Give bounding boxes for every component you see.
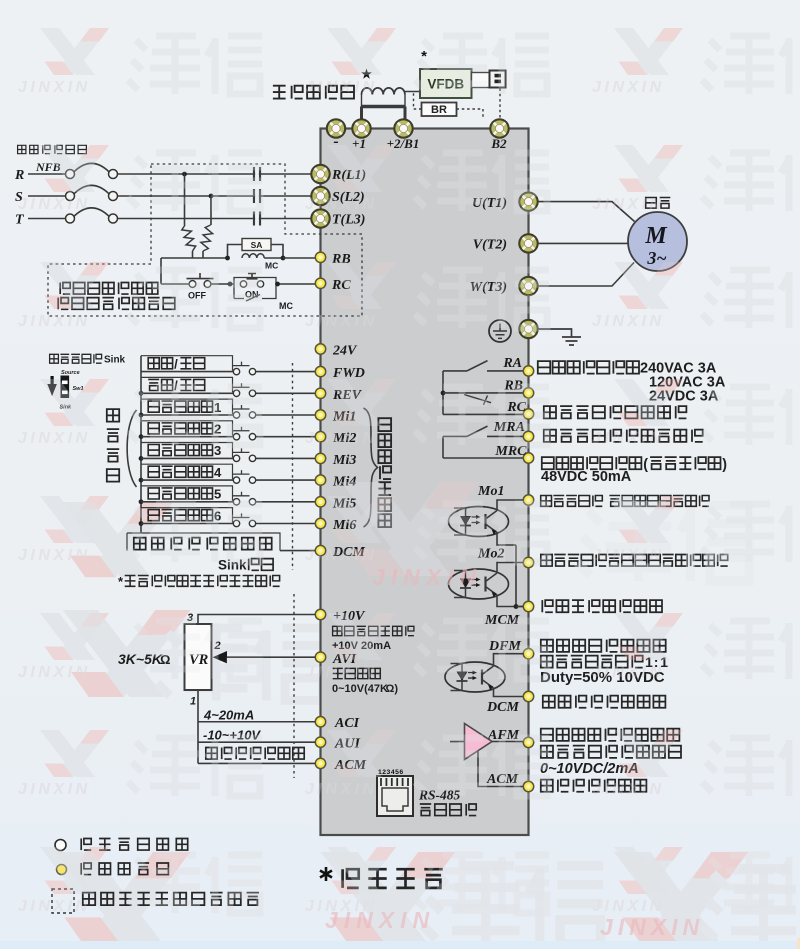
svg-text:VR: VR	[189, 652, 209, 668]
svg-text:Source: Source	[61, 370, 80, 376]
svg-text:1: 1	[214, 400, 221, 415]
svg-text:Mi6: Mi6	[332, 518, 356, 533]
svg-text:AVI: AVI	[332, 652, 357, 667]
svg-text:48VDC 50mA: 48VDC 50mA	[541, 469, 632, 485]
svg-text:★: ★	[361, 67, 372, 81]
svg-text:+10V 20mA: +10V 20mA	[332, 640, 391, 652]
svg-text:0~10V(47K: 0~10V(47K	[332, 683, 388, 695]
svg-text:SA: SA	[251, 240, 263, 250]
svg-text:RC: RC	[506, 400, 526, 415]
svg-text:S(L2): S(L2)	[332, 190, 365, 205]
svg-text:3K~5K: 3K~5K	[118, 651, 163, 667]
svg-text:RC: RC	[331, 278, 351, 293]
svg-text:ACI: ACI	[334, 716, 360, 731]
svg-text:DCM: DCM	[486, 700, 519, 715]
svg-text:2: 2	[214, 640, 221, 652]
svg-text:5: 5	[214, 487, 221, 502]
svg-text:1: 1	[190, 696, 196, 708]
svg-text:/: /	[174, 357, 178, 372]
svg-text:Mo1: Mo1	[477, 484, 504, 499]
svg-text:MC: MC	[265, 261, 278, 271]
svg-text:B2: B2	[490, 136, 507, 151]
svg-text:R(L1): R(L1)	[331, 168, 366, 183]
svg-text:Sw1: Sw1	[73, 386, 84, 392]
svg-text:T(L3): T(L3)	[332, 213, 365, 228]
svg-text:MRA: MRA	[493, 420, 525, 435]
svg-text:24VDC 3A: 24VDC 3A	[649, 389, 719, 405]
svg-text:DFM: DFM	[488, 639, 521, 654]
svg-text:AUI: AUI	[334, 737, 360, 752]
svg-text:R: R	[14, 168, 24, 183]
svg-text:(: (	[643, 457, 648, 473]
svg-text:MCM: MCM	[484, 613, 520, 628]
svg-text:BR: BR	[431, 104, 447, 116]
svg-text:-: -	[333, 133, 338, 150]
svg-text:Mi3: Mi3	[332, 453, 356, 468]
svg-text:/: /	[174, 378, 178, 393]
svg-text:MC: MC	[279, 301, 293, 311]
svg-text:RB: RB	[503, 379, 523, 394]
svg-text:): )	[722, 457, 727, 473]
svg-text:OFF: OFF	[188, 291, 206, 301]
svg-text:ACM: ACM	[334, 758, 367, 773]
svg-text:Mi5: Mi5	[332, 496, 356, 511]
svg-text:VFDB: VFDB	[427, 77, 464, 92]
svg-text:REV: REV	[332, 388, 363, 403]
svg-text:Ω): Ω)	[386, 683, 399, 695]
svg-text:FWD: FWD	[332, 366, 365, 381]
svg-text:123456: 123456	[378, 769, 404, 776]
svg-text:+2/B1: +2/B1	[387, 136, 420, 151]
svg-text:RA: RA	[502, 356, 522, 371]
svg-text:6: 6	[214, 508, 221, 523]
svg-text:+10V: +10V	[333, 609, 366, 624]
svg-text:Sink: Sink	[104, 355, 126, 366]
svg-text:+1: +1	[352, 136, 366, 151]
svg-text:U(T1): U(T1)	[472, 196, 507, 211]
svg-text:3: 3	[187, 612, 193, 624]
svg-text:4~20mA: 4~20mA	[203, 708, 254, 723]
svg-text:DCM: DCM	[332, 545, 365, 560]
svg-text:V(T2): V(T2)	[473, 238, 507, 253]
svg-text:S: S	[15, 190, 23, 205]
svg-text:*: *	[118, 574, 124, 589]
svg-text:Mi2: Mi2	[332, 431, 356, 446]
svg-text:Sink: Sink	[218, 558, 247, 573]
svg-text:T: T	[15, 213, 25, 228]
svg-text:M: M	[644, 223, 668, 249]
svg-text:-10~+10V: -10~+10V	[203, 728, 261, 743]
svg-text:ACM: ACM	[486, 772, 519, 787]
svg-text:3: 3	[214, 443, 221, 458]
svg-text:MRC: MRC	[494, 444, 527, 459]
svg-text:Ω: Ω	[160, 652, 170, 667]
svg-text:Duty=50% 10VDC: Duty=50% 10VDC	[540, 669, 665, 686]
svg-text:Sink: Sink	[60, 405, 73, 411]
svg-text:3~: 3~	[646, 248, 666, 268]
svg-text:NFB: NFB	[35, 160, 61, 174]
svg-text:RB: RB	[331, 252, 351, 267]
svg-text:2: 2	[214, 422, 221, 437]
svg-text:24V: 24V	[332, 344, 358, 359]
svg-text:Mi4: Mi4	[332, 475, 356, 490]
svg-text:4: 4	[214, 465, 222, 480]
svg-text:W(T3): W(T3)	[470, 280, 507, 295]
svg-text:0~10VDC/2mA: 0~10VDC/2mA	[540, 761, 639, 777]
svg-text:RS-485: RS-485	[418, 788, 461, 803]
svg-text:Mi1: Mi1	[332, 410, 356, 425]
svg-text:*: *	[421, 48, 427, 65]
svg-text:Mo2: Mo2	[477, 547, 504, 562]
